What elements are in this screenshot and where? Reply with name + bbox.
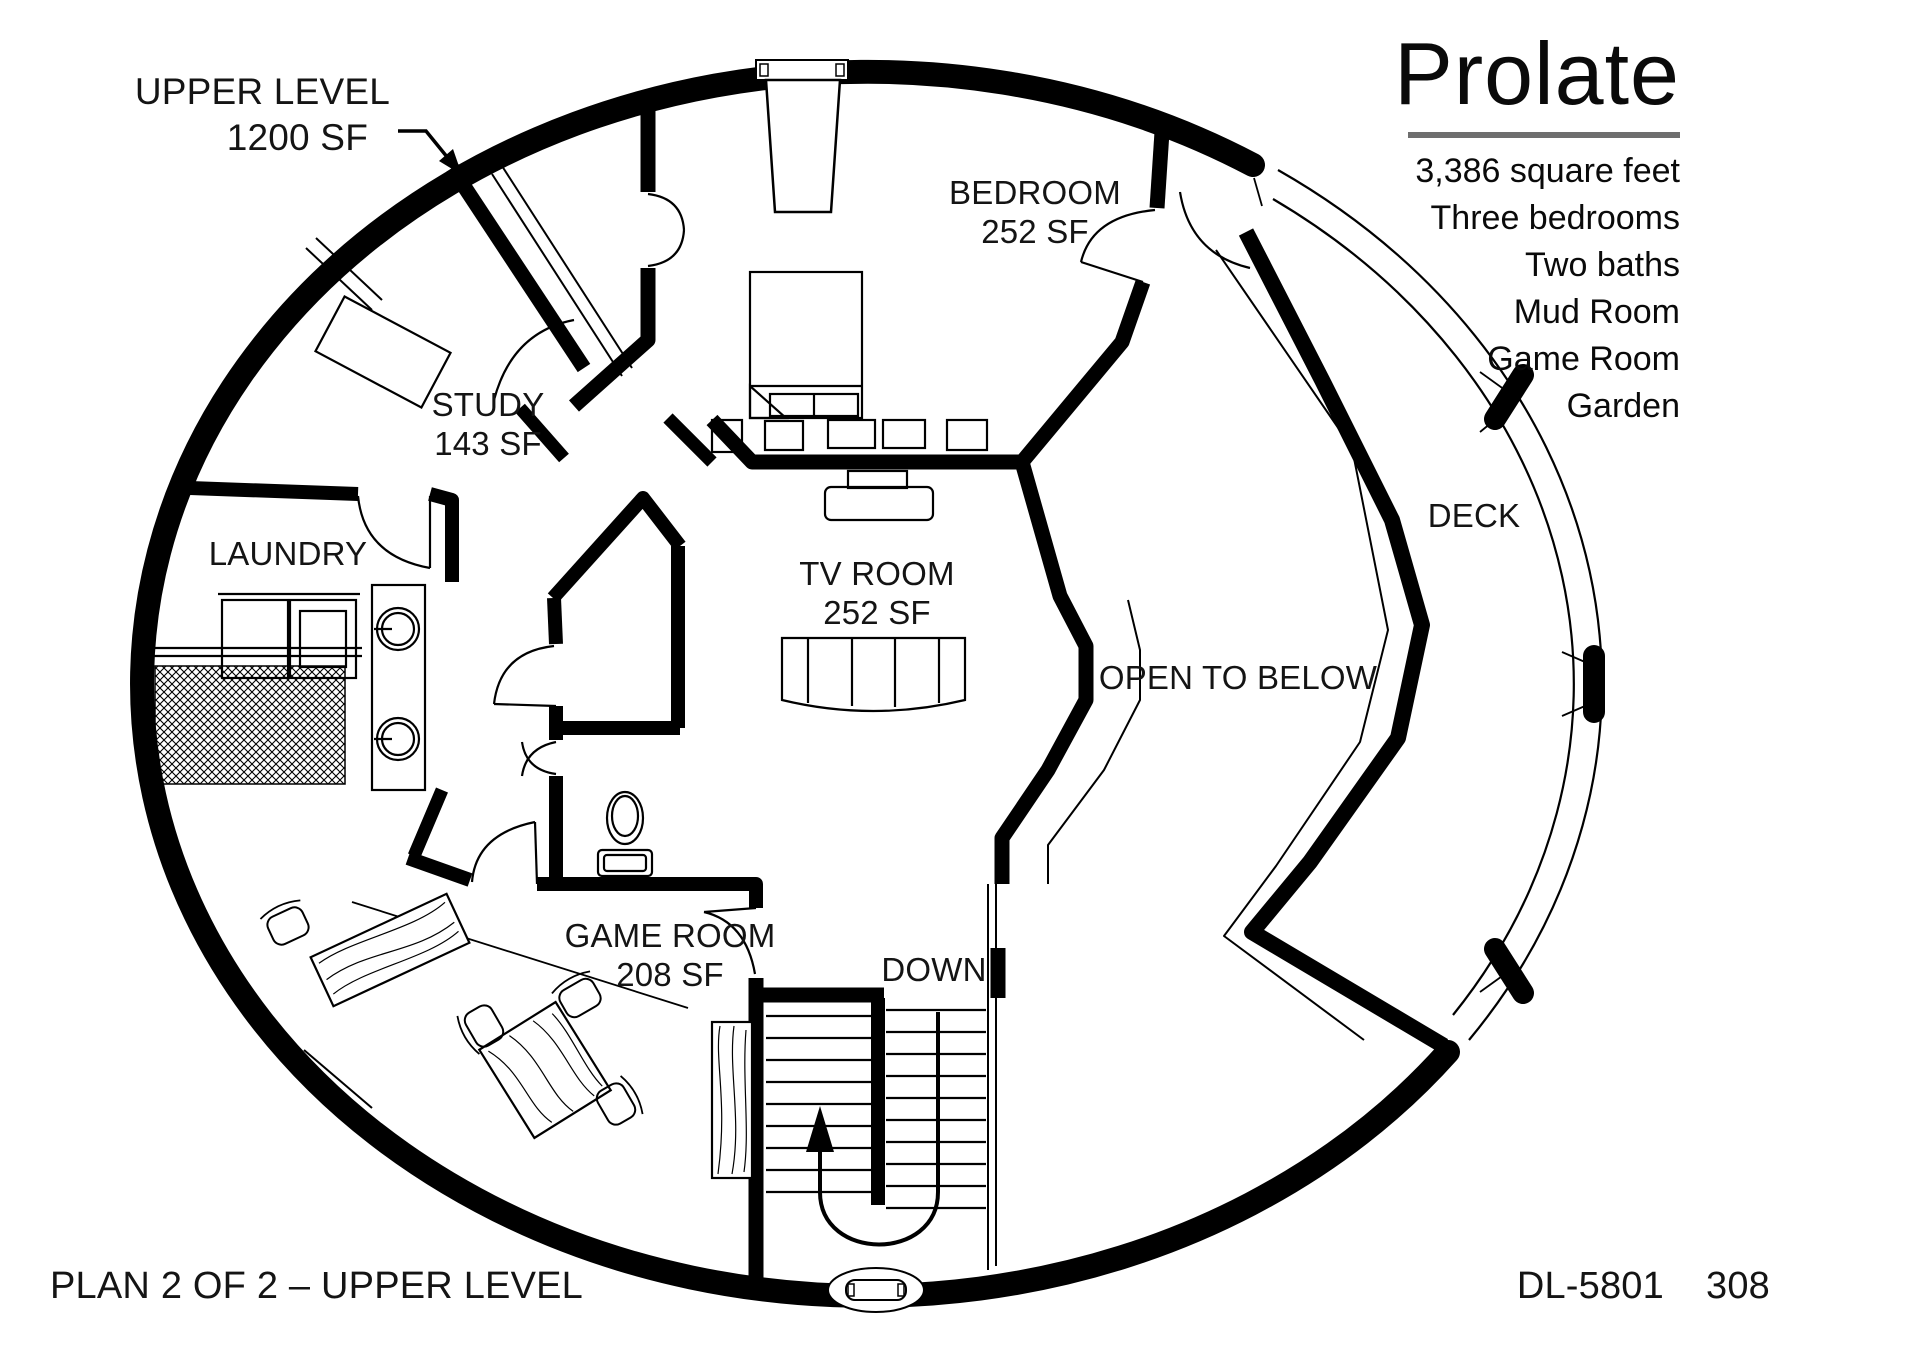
- laundry-name: LAUNDRY: [209, 535, 368, 572]
- study-desk: [315, 296, 450, 407]
- detail-gameroom: Game Room: [1394, 336, 1680, 383]
- laundry-label: LAUNDRY: [209, 536, 368, 572]
- page-number: 308: [1706, 1265, 1770, 1307]
- tv-room-area: 252 SF: [799, 595, 954, 631]
- tv-console: [825, 471, 933, 520]
- open-to-below-name: OPEN TO BELOW: [1099, 659, 1377, 696]
- down-label: DOWN: [881, 952, 986, 988]
- laundry-floor-hatch: [155, 666, 345, 784]
- railing-chamfers: [1480, 372, 1585, 992]
- game-table-long: [311, 894, 470, 1006]
- couch: [782, 638, 965, 711]
- plan-sheet-label: PLAN 2 OF 2 – UPPER LEVEL: [50, 1266, 583, 1307]
- detail-baths: Two baths: [1394, 242, 1680, 289]
- plan-title: Prolate: [1394, 30, 1680, 118]
- study-name: STUDY: [432, 386, 545, 423]
- bedroom-label: BEDROOM 252 SF: [949, 175, 1121, 249]
- tv-room-name: TV ROOM: [799, 555, 954, 592]
- bottom-oval-window: [828, 1268, 924, 1312]
- game-room-label: GAME ROOM 208 SF: [565, 918, 776, 992]
- bed: [750, 272, 862, 418]
- stairs: [757, 884, 996, 1270]
- plan-sheet-text: PLAN 2 OF 2 – UPPER LEVEL: [50, 1265, 583, 1307]
- open-to-below-label: OPEN TO BELOW: [1099, 660, 1377, 696]
- bedroom-walls: [574, 98, 1162, 462]
- game-table-chair: [259, 897, 315, 949]
- tvroom-walls: [998, 462, 1140, 998]
- floor-plan-page: UPPER LEVEL 1200 SF BEDROOM 252 SF STUDY…: [0, 0, 1920, 1363]
- plan-number: DL-5801: [1517, 1265, 1664, 1307]
- laundry-bath-walls: [190, 488, 756, 1282]
- deck-label: DECK: [1428, 498, 1521, 534]
- detail-garden: Garden: [1394, 383, 1680, 430]
- title-block: Prolate 3,386 square feet Three bedrooms…: [1394, 30, 1680, 430]
- study-label: STUDY 143 SF: [432, 387, 545, 461]
- down-name: DOWN: [881, 951, 986, 988]
- game-room-name: GAME ROOM: [565, 917, 776, 954]
- top-dormer: [756, 60, 848, 212]
- game-room-area: 208 SF: [565, 957, 776, 993]
- toilet: [598, 792, 652, 876]
- bedroom-name: BEDROOM: [949, 174, 1121, 211]
- study-area: 143 SF: [432, 426, 545, 462]
- upper-level-area: 1200 SF: [135, 118, 390, 158]
- detail-sqft: 3,386 square feet: [1394, 148, 1680, 195]
- detail-mudroom: Mud Room: [1394, 289, 1680, 336]
- bedroom-area: 252 SF: [949, 214, 1121, 250]
- plan-number-label: DL-5801308: [1517, 1266, 1770, 1307]
- upper-level-text: UPPER LEVEL: [135, 71, 390, 112]
- pointer-arrow: [398, 131, 462, 175]
- upper-level-pointer-label: UPPER LEVEL 1200 SF: [135, 72, 390, 158]
- title-rule: [1408, 132, 1680, 138]
- deck-name: DECK: [1428, 497, 1521, 534]
- tv-room-label: TV ROOM 252 SF: [799, 556, 954, 630]
- wood-bench: [712, 1022, 752, 1178]
- detail-bedrooms: Three bedrooms: [1394, 195, 1680, 242]
- bedroom-dressers: [712, 420, 987, 452]
- bath-vanity: [372, 585, 425, 790]
- railing-posts: [1495, 375, 1594, 993]
